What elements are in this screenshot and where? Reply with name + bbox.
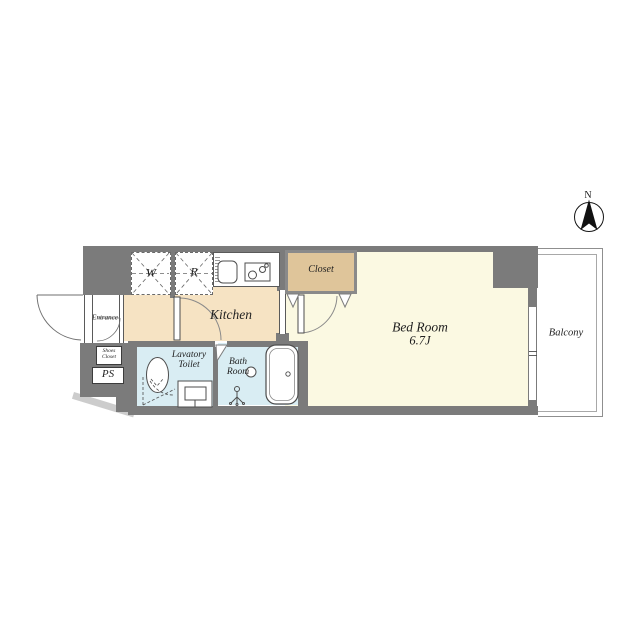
- bedroom-name: Bed Room: [392, 320, 448, 334]
- label-bath-room: Bath Room: [227, 358, 249, 378]
- toilet-icon: [143, 358, 175, 406]
- sink-icon: [218, 261, 237, 283]
- label-balcony: Balcony: [549, 327, 583, 338]
- vanity-icon: [178, 381, 212, 407]
- bedroom-door: [298, 295, 337, 333]
- shoes-closet-line2: Closet: [102, 355, 116, 361]
- compass-needle: [581, 200, 598, 231]
- label-closet: Closet: [308, 265, 334, 276]
- bath-door-marker: [216, 345, 227, 361]
- bedroom-size: 6.7J: [392, 335, 448, 348]
- floor-plan: N Kitchen Bed Room 6.7J Closet Balcony L…: [0, 0, 640, 640]
- label-north: N: [584, 191, 591, 202]
- window-ticks: [529, 352, 537, 356]
- closet-door-markers: [287, 294, 351, 307]
- lavatory-line2: Toilet: [172, 361, 206, 371]
- label-bedroom: Bed Room 6.7J: [392, 320, 448, 347]
- bathtub-icon: [266, 345, 298, 404]
- label-refrigerator: R: [190, 266, 197, 279]
- label-lavatory-toilet: Lavatory Toilet: [172, 351, 206, 371]
- bathroom-line2: Room: [227, 368, 249, 378]
- label-pipe-space: PS: [102, 369, 114, 381]
- shower-icon: [230, 387, 245, 406]
- label-shoes-closet: Shoes Closet: [102, 349, 116, 361]
- label-kitchen: Kitchen: [210, 308, 252, 322]
- label-entrance: Entrance: [92, 314, 118, 321]
- stove-icon: [245, 263, 270, 281]
- label-washer: W: [146, 267, 156, 280]
